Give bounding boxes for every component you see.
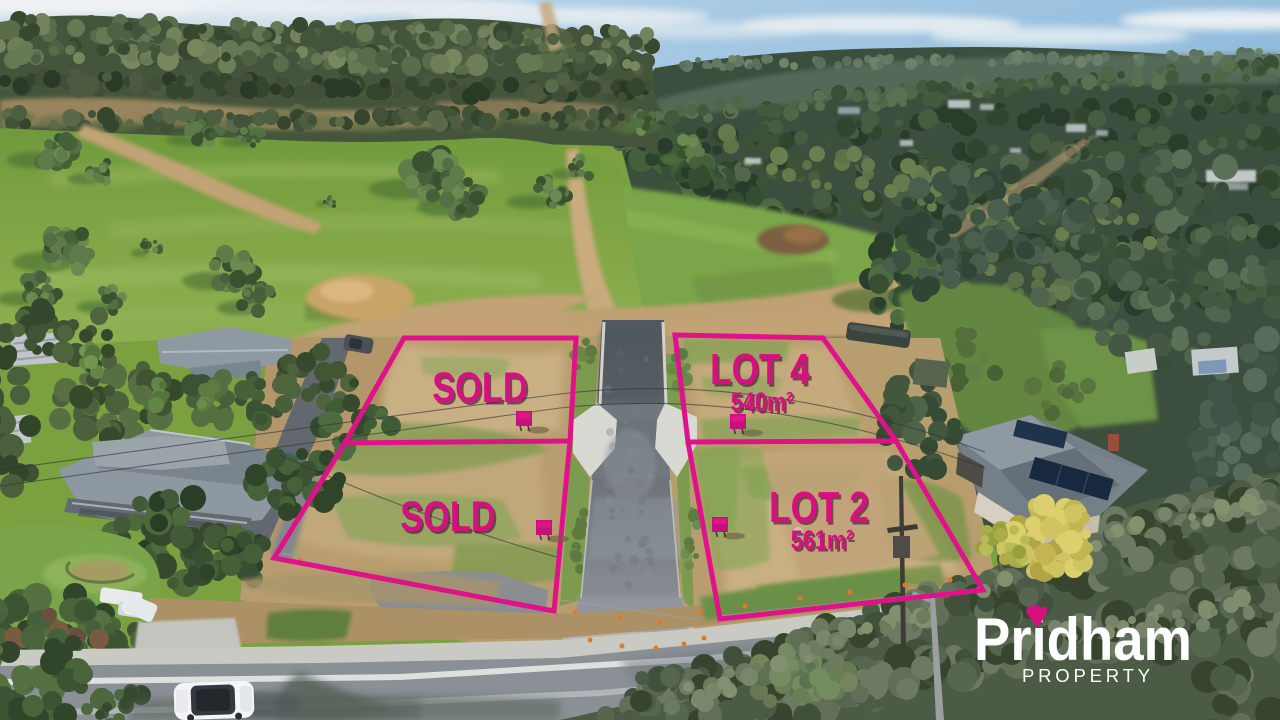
- svg-text:LOT 2: LOT 2: [769, 483, 869, 532]
- svg-text:LOT 4: LOT 4: [710, 345, 810, 394]
- svg-text:SOLD: SOLD: [400, 493, 496, 540]
- svg-text:561m²: 561m²: [791, 526, 853, 556]
- svg-text:PROPERTY: PROPERTY: [1022, 665, 1154, 686]
- svg-text:Pridham: Pridham: [974, 606, 1192, 673]
- svg-text:SOLD: SOLD: [432, 364, 528, 411]
- svg-text:540m²: 540m²: [731, 388, 793, 418]
